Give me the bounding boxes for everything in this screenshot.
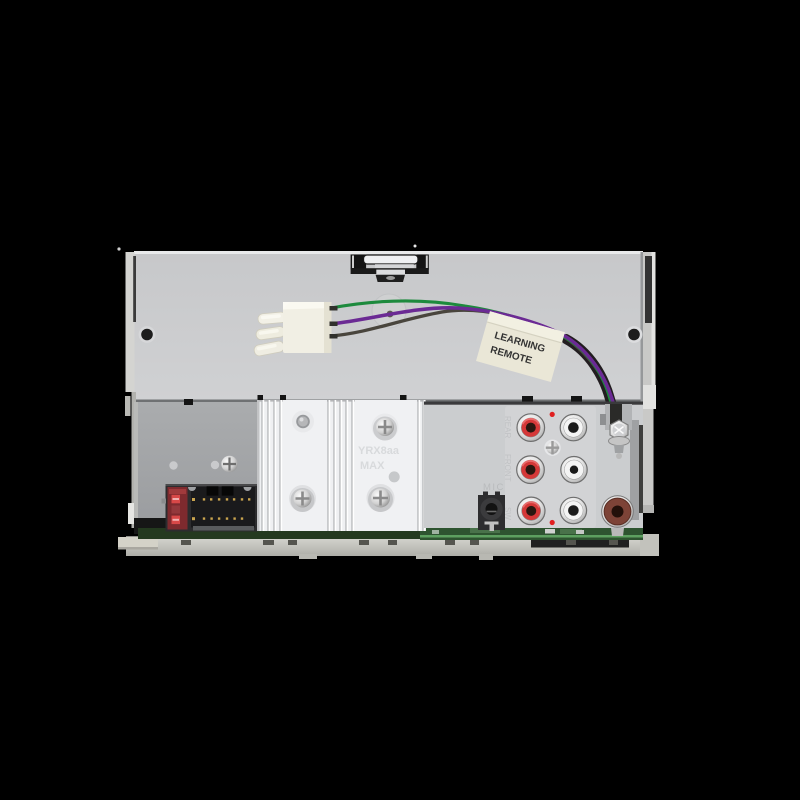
svg-text:MIC: MIC — [483, 482, 505, 493]
svg-text:FRONT: FRONT — [503, 454, 512, 482]
svg-text:REAR: REAR — [503, 416, 512, 438]
svg-text:MAX: MAX — [360, 460, 385, 472]
svg-text:YRX8aa: YRX8aa — [358, 445, 400, 457]
